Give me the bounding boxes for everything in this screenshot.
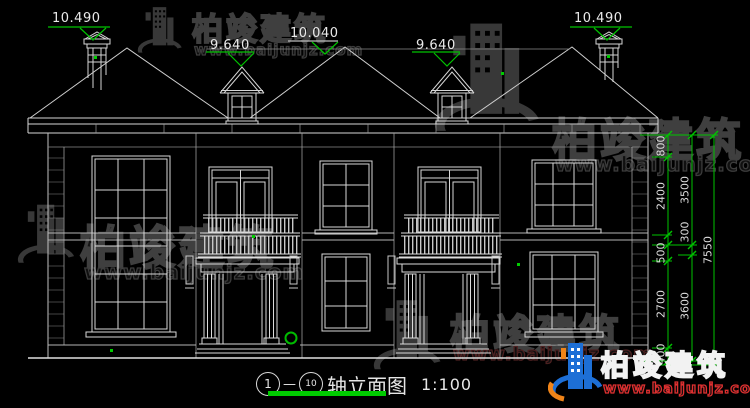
level-label-chimney-right: 10.490 bbox=[574, 11, 623, 26]
site-logo-url: www.baijunjz.com bbox=[603, 381, 750, 397]
dim-3500: 3500 bbox=[679, 176, 692, 204]
dim-800: 800 bbox=[655, 136, 668, 157]
porch-right bbox=[396, 258, 500, 353]
level-label-dormer-right: 9.640 bbox=[416, 38, 456, 53]
window-center-lower bbox=[322, 254, 370, 331]
level-label-ridge: 10.040 bbox=[290, 26, 339, 41]
axis-dash: — bbox=[283, 377, 296, 392]
dim-500: 500 bbox=[655, 243, 668, 264]
level-marks bbox=[48, 27, 632, 66]
cad-elevation-canvas: 柏竣建筑 www.baijunjz.com 柏竣建筑 www.baijunjz.… bbox=[0, 0, 750, 408]
title-underline bbox=[268, 391, 386, 396]
eaves-band bbox=[28, 118, 658, 133]
chimney-left bbox=[84, 32, 110, 90]
balcony-right bbox=[399, 215, 502, 257]
window-stair-left bbox=[86, 156, 176, 337]
balcony-left bbox=[198, 215, 301, 257]
dim-7550: 7550 bbox=[702, 236, 715, 264]
roof-outline bbox=[30, 47, 658, 118]
dim-2700: 2700 bbox=[655, 290, 668, 318]
dim-300: 300 bbox=[679, 222, 692, 243]
dim-3600: 3600 bbox=[679, 292, 692, 320]
level-label-chimney-left: 10.490 bbox=[52, 11, 101, 26]
site-logo-icon bbox=[548, 338, 602, 406]
window-right-upper bbox=[527, 160, 601, 233]
site-logo-brand: 柏竣建筑 bbox=[601, 344, 729, 384]
window-center-upper bbox=[315, 161, 377, 234]
dim-2400: 2400 bbox=[655, 182, 668, 210]
window-right-lower bbox=[525, 252, 603, 337]
dormer-left bbox=[220, 67, 264, 124]
porch-left bbox=[195, 258, 299, 353]
title-scale: 1:100 bbox=[421, 375, 472, 394]
level-label-dormer-left: 9.640 bbox=[210, 38, 250, 53]
